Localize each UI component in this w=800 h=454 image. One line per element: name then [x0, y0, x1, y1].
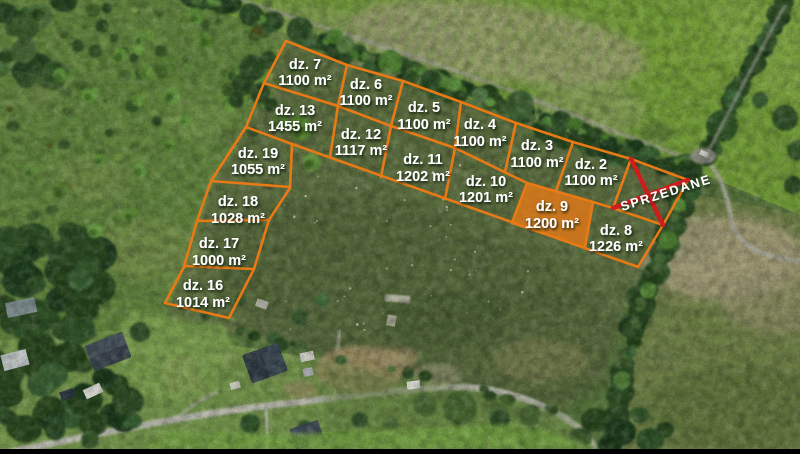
svg-text:1100 m²: 1100 m² [278, 73, 331, 89]
svg-text:dz. 8: dz. 8 [600, 223, 632, 239]
svg-text:dz. 11: dz. 11 [403, 152, 443, 168]
svg-text:1055 m²: 1055 m² [231, 162, 285, 178]
svg-text:dz. 9: dz. 9 [536, 199, 568, 215]
svg-text:1200 m²: 1200 m² [525, 216, 579, 232]
svg-text:dz. 19: dz. 19 [238, 146, 278, 162]
svg-text:dz. 6: dz. 6 [350, 77, 382, 93]
svg-text:dz. 4: dz. 4 [464, 117, 496, 133]
svg-text:1028 m²: 1028 m² [211, 211, 265, 227]
svg-text:1100 m²: 1100 m² [397, 117, 450, 133]
svg-text:dz. 18: dz. 18 [218, 194, 258, 210]
svg-text:1117 m²: 1117 m² [335, 143, 388, 159]
svg-text:1201 m²: 1201 m² [459, 190, 513, 206]
svg-text:1100 m²: 1100 m² [453, 134, 506, 150]
svg-text:1014 m²: 1014 m² [176, 295, 230, 311]
svg-text:1226 m²: 1226 m² [589, 239, 643, 255]
svg-text:dz. 10: dz. 10 [466, 174, 506, 190]
svg-text:dz. 7: dz. 7 [289, 57, 321, 73]
svg-text:dz. 12: dz. 12 [341, 127, 381, 143]
svg-text:1000 m²: 1000 m² [192, 253, 246, 269]
svg-text:dz. 2: dz. 2 [575, 157, 607, 173]
svg-text:1100 m²: 1100 m² [510, 155, 563, 171]
svg-text:dz. 13: dz. 13 [275, 103, 315, 119]
svg-text:1100 m²: 1100 m² [339, 93, 392, 109]
svg-text:1202 m²: 1202 m² [396, 169, 450, 185]
svg-text:1455 m²: 1455 m² [268, 119, 322, 135]
svg-text:dz. 3: dz. 3 [521, 138, 553, 154]
svg-text:dz. 17: dz. 17 [199, 236, 239, 252]
svg-text:dz. 16: dz. 16 [183, 278, 223, 294]
svg-text:1100 m²: 1100 m² [564, 173, 617, 189]
svg-text:dz. 5: dz. 5 [408, 100, 440, 116]
